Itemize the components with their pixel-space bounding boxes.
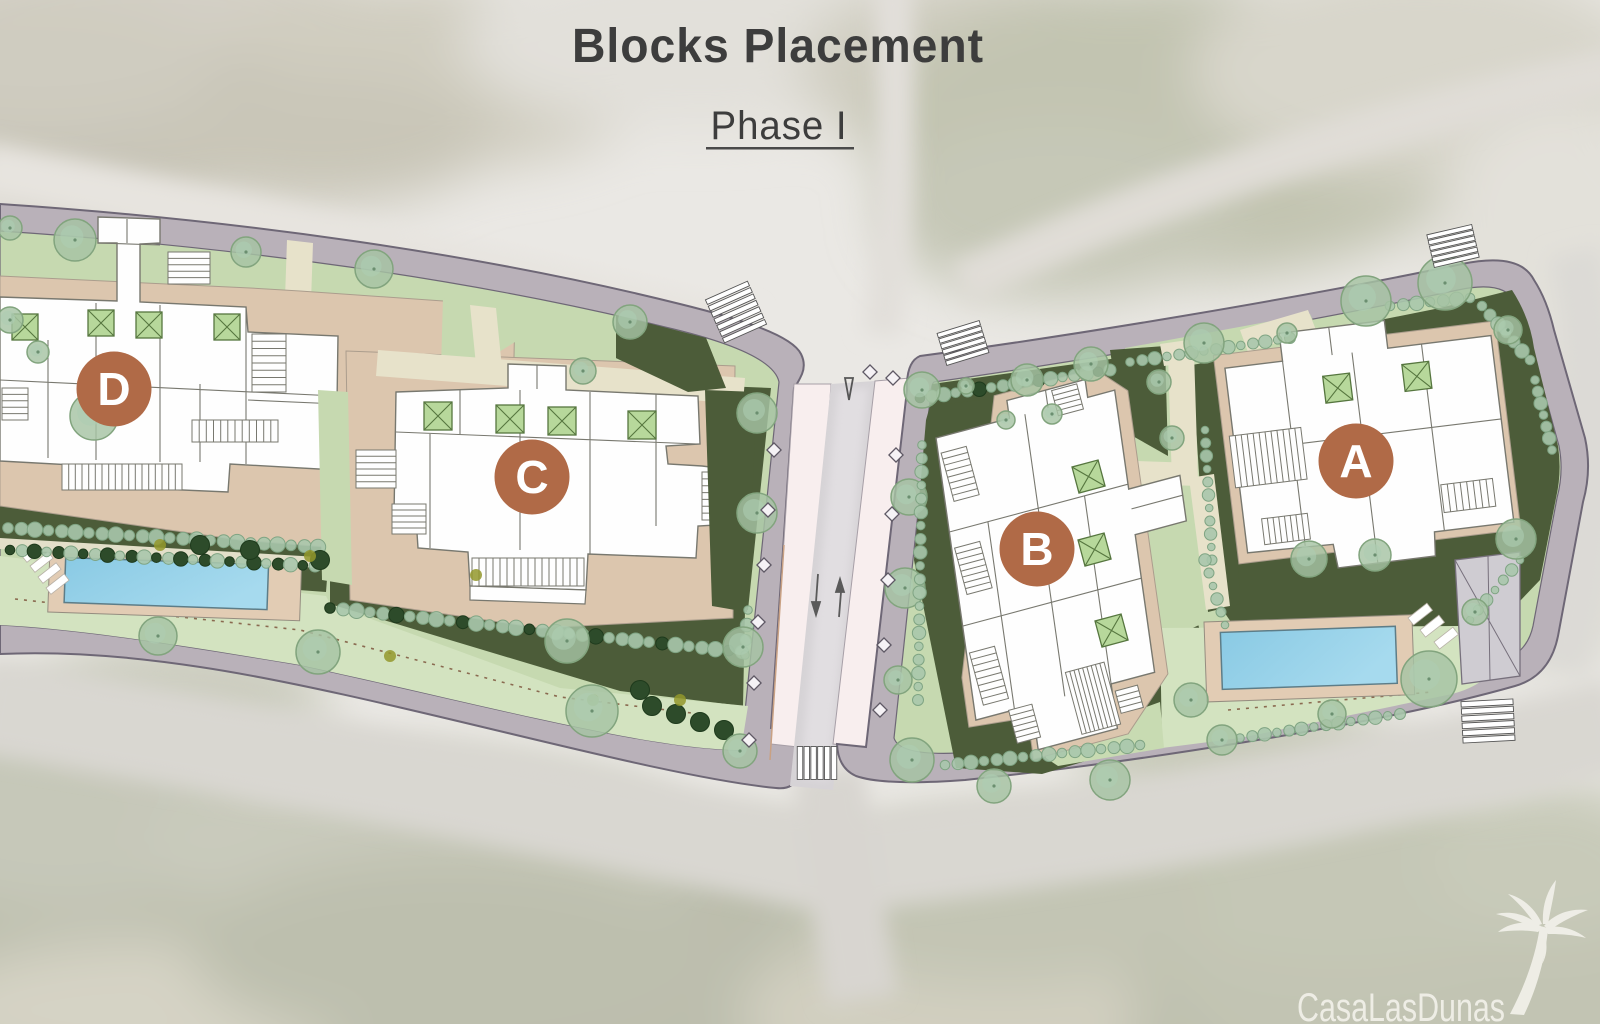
svg-text:C: C [515,451,548,503]
svg-text:B: B [1020,523,1053,575]
svg-text:D: D [97,363,130,415]
svg-text:CasaLasDunas: CasaLasDunas [1297,986,1505,1024]
svg-text:Phase I: Phase I [711,104,848,148]
svg-text:Blocks Placement: Blocks Placement [572,20,984,73]
svg-text:A: A [1339,435,1372,487]
